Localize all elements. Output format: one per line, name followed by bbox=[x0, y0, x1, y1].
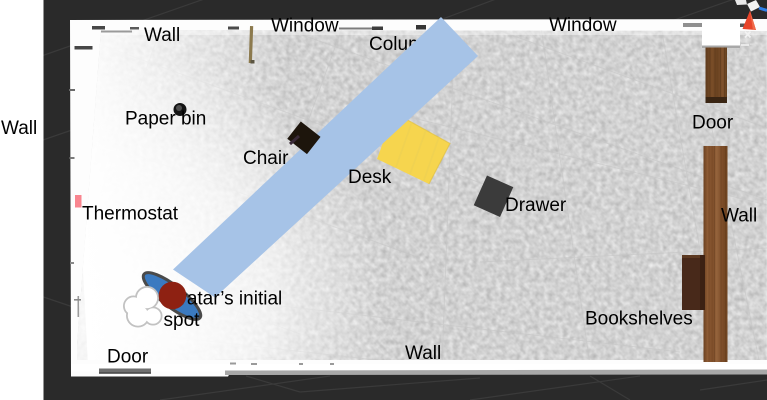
svg-text:Paper bin: Paper bin bbox=[125, 109, 206, 130]
svg-text:Thermostat: Thermostat bbox=[82, 204, 179, 225]
svg-text:Desk: Desk bbox=[348, 167, 392, 188]
svg-text:Door: Door bbox=[107, 347, 149, 368]
svg-text:Window: Window bbox=[271, 16, 339, 37]
svg-text:spot: spot bbox=[164, 310, 201, 331]
svg-text:Wall: Wall bbox=[721, 206, 757, 227]
svg-text:Wall: Wall bbox=[405, 343, 441, 364]
svg-text:Bookshelves: Bookshelves bbox=[585, 309, 693, 330]
svg-text:Drawer: Drawer bbox=[505, 195, 567, 216]
svg-text:Wall: Wall bbox=[1, 118, 37, 139]
svg-text:Window: Window bbox=[549, 15, 617, 36]
svg-text:Chair: Chair bbox=[243, 148, 289, 169]
svg-text:Door: Door bbox=[692, 113, 734, 134]
svg-text:Wall: Wall bbox=[144, 25, 180, 46]
